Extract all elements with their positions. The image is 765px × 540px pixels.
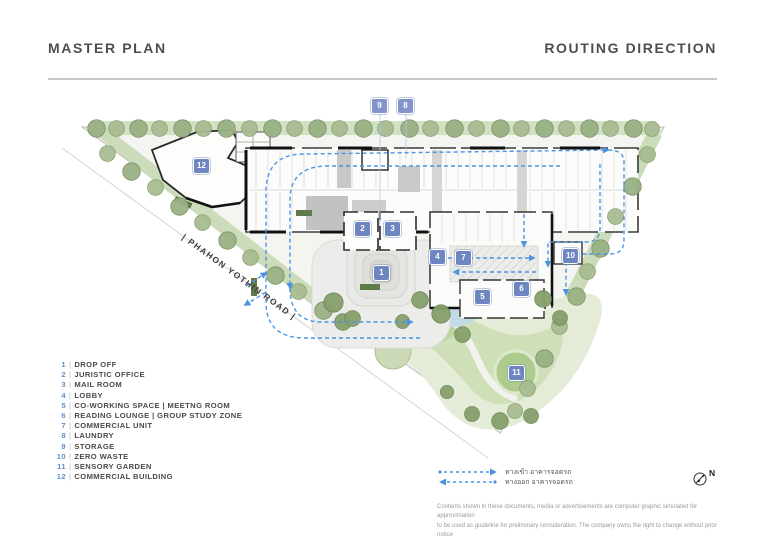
legend-item-number: 5 bbox=[52, 401, 66, 410]
legend-item-label: READING LOUNGE | GROUP STUDY ZONE bbox=[74, 411, 242, 420]
legend-item-number: 1 bbox=[52, 360, 66, 369]
plan-marker-11: 11 bbox=[508, 365, 525, 381]
north-label: N bbox=[709, 468, 715, 478]
plan-marker-4: 4 bbox=[429, 249, 446, 265]
legend-item-label: STORAGE bbox=[74, 442, 114, 451]
legend-item-3: 3|MAIL ROOM bbox=[52, 380, 242, 390]
legend-item-number: 6 bbox=[52, 411, 66, 420]
legend-item-label: LOBBY bbox=[74, 391, 103, 400]
legend-item-number: 8 bbox=[52, 431, 66, 440]
legend-separator: | bbox=[69, 431, 71, 440]
disclaimer-text: Contents shown in these documents, media… bbox=[437, 503, 729, 540]
routing-legend-exit-row: ทางออก อาคารจอดรถ bbox=[437, 477, 573, 487]
plan-marker-9: 9 bbox=[371, 98, 388, 114]
north-indicator: N bbox=[692, 470, 715, 486]
legend-item-number: 9 bbox=[52, 442, 66, 451]
legend-item-label: MAIL ROOM bbox=[74, 380, 122, 389]
legend-item-9: 9|STORAGE bbox=[52, 442, 242, 452]
plan-marker-5: 5 bbox=[474, 289, 491, 305]
plan-marker-3: 3 bbox=[384, 221, 401, 237]
legend-separator: | bbox=[69, 421, 71, 430]
legend-item-5: 5|CO-WORKING SPACE | MEETNG ROOM bbox=[52, 401, 242, 411]
disclaimer-line-1: Contents shown in these documents, media… bbox=[437, 503, 729, 522]
legend-item-number: 12 bbox=[52, 472, 66, 481]
legend-item-label: CO-WORKING SPACE | MEETNG ROOM bbox=[74, 401, 230, 410]
plan-marker-6: 6 bbox=[513, 281, 530, 297]
plan-marker-2: 2 bbox=[354, 221, 371, 237]
legend-item-number: 2 bbox=[52, 370, 66, 379]
legend-item-12: 12|COMMERCIAL BUILDING bbox=[52, 472, 242, 482]
legend-item-label: LAUNDRY bbox=[74, 431, 114, 440]
route-out-label: ทางออก อาคารจอดรถ bbox=[505, 477, 573, 488]
legend-item-number: 7 bbox=[52, 421, 66, 430]
legend-item-10: 10|ZERO WASTE bbox=[52, 452, 242, 462]
routing-legend: ทางเข้า อาคารจอดรถ ทางออก อาคารจอดรถ bbox=[437, 467, 573, 487]
legend-item-number: 3 bbox=[52, 380, 66, 389]
legend-separator: | bbox=[69, 380, 71, 389]
legend-separator: | bbox=[69, 411, 71, 420]
legend-item-1: 1|DROP OFF bbox=[52, 360, 242, 370]
legend-item-8: 8|LAUNDRY bbox=[52, 431, 242, 441]
legend-item-label: SENSORY GARDEN bbox=[74, 462, 151, 471]
legend-item-label: JURISTIC OFFICE bbox=[74, 370, 145, 379]
legend-item-number: 4 bbox=[52, 391, 66, 400]
legend-item-number: 10 bbox=[52, 452, 66, 461]
legend-separator: | bbox=[69, 370, 71, 379]
legend-item-label: COMMERCIAL BUILDING bbox=[74, 472, 173, 481]
plan-marker-1: 1 bbox=[373, 265, 390, 281]
disclaimer-line-2: to be used as guideline for preliminary … bbox=[437, 522, 729, 540]
legend-separator: | bbox=[69, 472, 71, 481]
plan-marker-7: 7 bbox=[455, 250, 472, 266]
legend-item-7: 7|COMMERCIAL UNIT bbox=[52, 421, 242, 431]
legend-item-11: 11|SENSORY GARDEN bbox=[52, 462, 242, 472]
legend-item-label: COMMERCIAL UNIT bbox=[74, 421, 152, 430]
legend-separator: | bbox=[69, 442, 71, 451]
legend-separator: | bbox=[69, 401, 71, 410]
legend-item-number: 11 bbox=[52, 462, 66, 471]
legend-separator: | bbox=[69, 360, 71, 369]
legend-separator: | bbox=[69, 462, 71, 471]
route-out-arrow-icon bbox=[437, 478, 499, 486]
legend-item-6: 6|READING LOUNGE | GROUP STUDY ZONE bbox=[52, 411, 242, 421]
plan-marker-12: 12 bbox=[193, 158, 210, 174]
route-in-arrow-icon bbox=[437, 468, 499, 476]
routing-legend-entry-row: ทางเข้า อาคารจอดรถ bbox=[437, 467, 573, 477]
legend-item-2: 2|JURISTIC OFFICE bbox=[52, 370, 242, 380]
legend-separator: | bbox=[69, 391, 71, 400]
legend-item-label: ZERO WASTE bbox=[74, 452, 128, 461]
master-plan-page: MASTER PLAN ROUTING DIRECTION bbox=[0, 0, 765, 540]
plan-marker-8: 8 bbox=[397, 98, 414, 114]
north-compass-icon bbox=[692, 470, 708, 486]
legend-item-label: DROP OFF bbox=[74, 360, 116, 369]
plan-marker-10: 10 bbox=[562, 248, 579, 264]
legend-separator: | bbox=[69, 452, 71, 461]
legend-list: 1|DROP OFF2|JURISTIC OFFICE3|MAIL ROOM4|… bbox=[52, 360, 242, 482]
legend-item-4: 4|LOBBY bbox=[52, 391, 242, 401]
